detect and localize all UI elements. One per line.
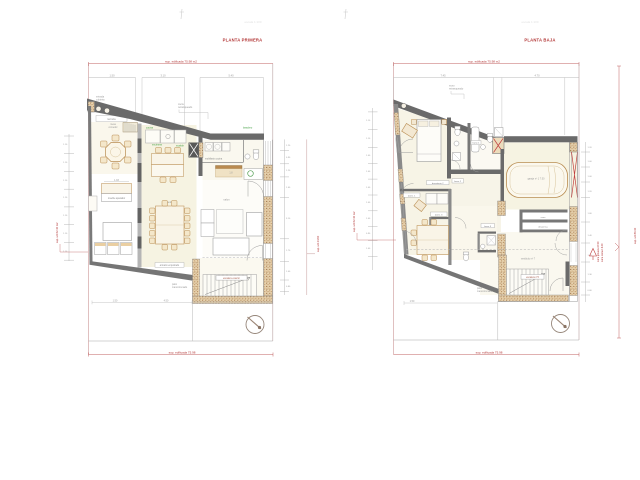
svg-text:1.70: 1.70 bbox=[286, 250, 291, 252]
svg-text:1.10: 1.10 bbox=[63, 144, 68, 146]
svg-text:armario empotrado: armario empotrado bbox=[160, 264, 180, 267]
svg-text:1.00: 1.00 bbox=[588, 161, 593, 163]
svg-text:comedor: comedor bbox=[109, 126, 118, 129]
svg-text:1.10: 1.10 bbox=[63, 197, 68, 199]
svg-text:bano 2: bano 2 bbox=[454, 181, 461, 183]
svg-text:1.00: 1.00 bbox=[366, 187, 371, 189]
svg-text:1.40: 1.40 bbox=[286, 271, 291, 273]
svg-text:dorm. 1: dorm. 1 bbox=[408, 194, 416, 197]
svg-text:1.80: 1.80 bbox=[588, 213, 593, 215]
svg-text:zona comun 8.30: zona comun 8.30 bbox=[601, 243, 604, 262]
svg-text:mueble aparador: mueble aparador bbox=[108, 197, 126, 200]
svg-text:1.20: 1.20 bbox=[588, 147, 593, 149]
svg-text:sup. edificada 75.98: sup. edificada 75.98 bbox=[476, 351, 503, 355]
svg-text:sup. util 89.30: sup. util 89.30 bbox=[633, 227, 637, 244]
svg-text:sup. util 62.40 m2: sup. util 62.40 m2 bbox=[55, 222, 59, 243]
svg-text:1.20: 1.20 bbox=[286, 145, 291, 147]
svg-text:terraza: terraza bbox=[107, 117, 116, 121]
svg-text:sup. edificada 75.98 m2: sup. edificada 75.98 m2 bbox=[165, 60, 197, 64]
svg-text:zona privada 24.50: zona privada 24.50 bbox=[597, 241, 600, 262]
svg-text:cocina: cocina bbox=[146, 127, 154, 130]
svg-text:1.10: 1.10 bbox=[366, 120, 371, 122]
svg-text:patio: patio bbox=[172, 283, 178, 286]
svg-text:1.10: 1.10 bbox=[63, 180, 68, 182]
svg-text:retranqueado: retranqueado bbox=[178, 106, 193, 109]
svg-text:retranqueado: retranqueado bbox=[449, 88, 464, 91]
svg-text:mobiliario cocina: mobiliario cocina bbox=[205, 157, 223, 160]
svg-text:1.00: 1.00 bbox=[366, 218, 371, 220]
svg-text:1.10: 1.10 bbox=[63, 215, 68, 217]
svg-text:lavadero: lavadero bbox=[243, 127, 253, 130]
svg-text:0.90: 0.90 bbox=[366, 233, 371, 235]
svg-text:1.10: 1.10 bbox=[366, 138, 371, 140]
svg-text:cubierta: cubierta bbox=[96, 99, 105, 102]
svg-text:salon: salon bbox=[223, 198, 230, 202]
svg-text:patio: patio bbox=[477, 287, 483, 290]
svg-text:mancomunado: mancomunado bbox=[477, 291, 493, 293]
svg-text:escala 1:100: escala 1:100 bbox=[521, 20, 538, 24]
svg-text:sup. edificada 75.98 m2: sup. edificada 75.98 m2 bbox=[468, 60, 500, 64]
svg-text:dormitorio 2: dormitorio 2 bbox=[432, 182, 444, 185]
svg-text:garaje nº 1 7.50: garaje nº 1 7.50 bbox=[528, 177, 545, 181]
svg-text:3.10: 3.10 bbox=[160, 74, 166, 78]
svg-text:1.30: 1.30 bbox=[588, 274, 593, 276]
svg-text:1.00: 1.00 bbox=[366, 248, 371, 250]
svg-text:despensa: despensa bbox=[538, 227, 548, 229]
svg-text:sup. util 24.60: sup. util 24.60 bbox=[316, 235, 320, 252]
svg-text:1.20: 1.20 bbox=[286, 170, 291, 172]
svg-text:1.50: 1.50 bbox=[109, 74, 115, 78]
svg-text:1.50: 1.50 bbox=[410, 300, 415, 303]
svg-text:1.00: 1.00 bbox=[588, 176, 593, 178]
svg-text:escala 1:100: escala 1:100 bbox=[244, 20, 261, 24]
svg-text:4.50: 4.50 bbox=[164, 300, 169, 303]
svg-text:dorm. 3: dorm. 3 bbox=[435, 213, 443, 216]
svg-text:1.10: 1.10 bbox=[63, 162, 68, 164]
svg-text:1.40: 1.40 bbox=[588, 235, 593, 237]
svg-text:1.00: 1.00 bbox=[366, 155, 371, 157]
svg-text:sup. util 62.40 m2: sup. util 62.40 m2 bbox=[352, 211, 356, 232]
svg-text:aseo: aseo bbox=[541, 217, 547, 219]
svg-text:1.93: 1.93 bbox=[114, 179, 119, 182]
svg-text:1.00: 1.00 bbox=[366, 171, 371, 173]
svg-text:vestibulo nº 7: vestibulo nº 7 bbox=[521, 257, 536, 261]
svg-text:bano 3: bano 3 bbox=[484, 226, 491, 228]
svg-text:escalera exterior: escalera exterior bbox=[223, 277, 240, 280]
svg-text:sup. edificada 75.98: sup. edificada 75.98 bbox=[169, 351, 196, 355]
svg-text:0.80: 0.80 bbox=[286, 286, 291, 288]
svg-text:7.45: 7.45 bbox=[440, 74, 446, 78]
svg-text:mueble: mueble bbox=[176, 145, 185, 148]
svg-text:PLANTA PRIMERA: PLANTA PRIMERA bbox=[223, 38, 263, 43]
svg-text:PLANTA BAJA: PLANTA BAJA bbox=[524, 38, 555, 43]
svg-text:3.10: 3.10 bbox=[286, 218, 291, 220]
svg-text:4.70: 4.70 bbox=[534, 74, 540, 78]
svg-text:mancomunado: mancomunado bbox=[172, 287, 188, 289]
svg-text:encimera: encimera bbox=[152, 144, 163, 147]
svg-text:1.00: 1.00 bbox=[366, 202, 371, 204]
svg-text:0.90: 0.90 bbox=[286, 157, 291, 159]
svg-text:0.80: 0.80 bbox=[588, 290, 593, 292]
svg-text:1.20: 1.20 bbox=[588, 191, 593, 193]
svg-text:1.60: 1.60 bbox=[286, 187, 291, 189]
svg-text:5.40: 5.40 bbox=[228, 74, 234, 78]
svg-text:1.10: 1.10 bbox=[63, 233, 68, 235]
svg-text:1.50: 1.50 bbox=[113, 300, 118, 303]
svg-text:bano 1: bano 1 bbox=[473, 143, 480, 145]
svg-text:mesa: mesa bbox=[110, 124, 116, 126]
